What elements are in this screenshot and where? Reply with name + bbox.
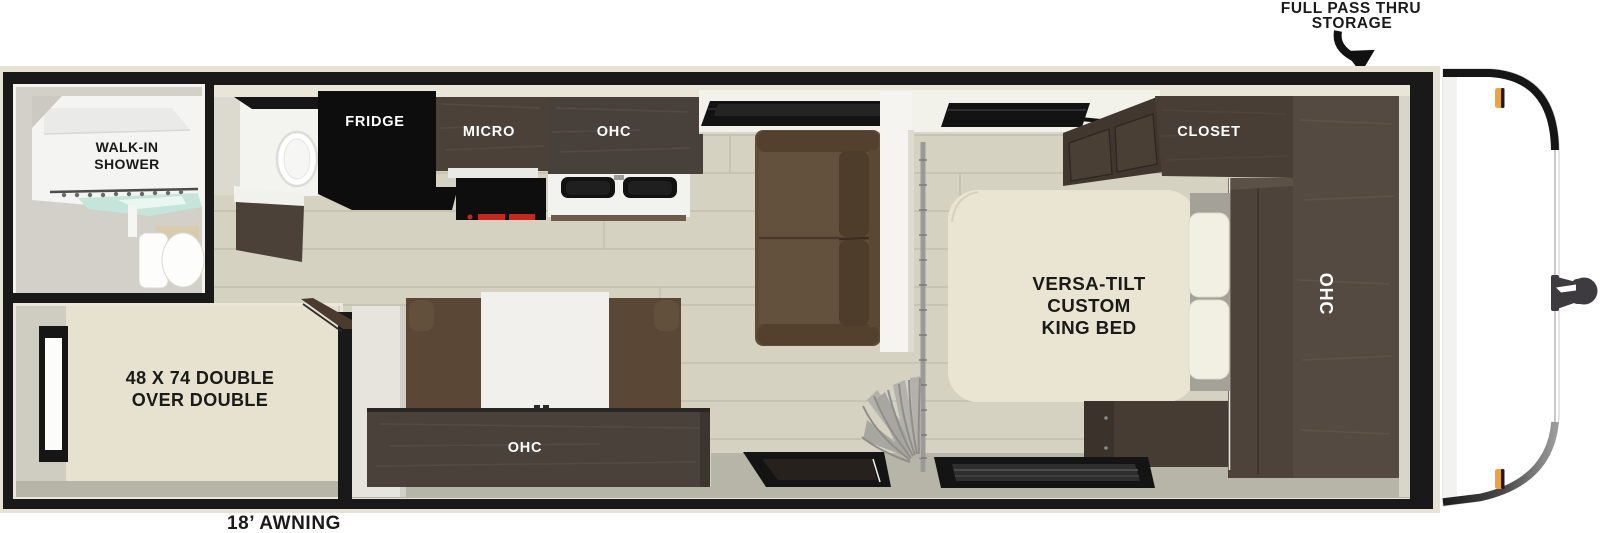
svg-text:FRIDGE: FRIDGE [345, 114, 405, 130]
svg-text:OHC: OHC [508, 440, 543, 456]
svg-text:48 X 74 DOUBLE: 48 X 74 DOUBLE [126, 368, 275, 388]
svg-text:OVER DOUBLE: OVER DOUBLE [132, 390, 268, 410]
svg-text:WALK-IN: WALK-IN [96, 139, 159, 155]
svg-text:STORAGE: STORAGE [1312, 15, 1393, 32]
svg-text:18’ AWNING: 18’ AWNING [227, 513, 341, 533]
svg-text:KING BED: KING BED [1041, 317, 1136, 338]
svg-text:CUSTOM: CUSTOM [1047, 295, 1130, 316]
svg-text:MICRO: MICRO [463, 124, 515, 140]
svg-text:OHC: OHC [1316, 273, 1336, 315]
svg-text:VERSA-TILT: VERSA-TILT [1032, 273, 1145, 294]
svg-text:CLOSET: CLOSET [1177, 124, 1241, 140]
svg-text:OHC: OHC [597, 124, 632, 140]
svg-text:SHOWER: SHOWER [94, 156, 159, 172]
